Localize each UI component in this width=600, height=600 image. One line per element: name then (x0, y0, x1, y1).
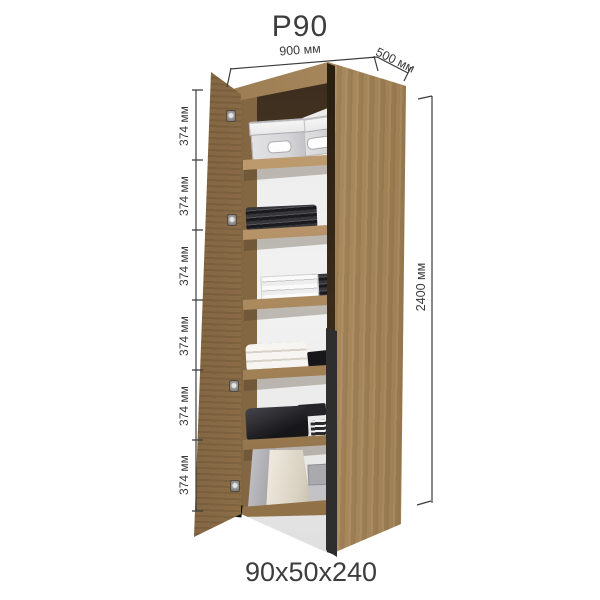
section-dimension-label: 374 мм (177, 96, 191, 156)
height-dimension-label: 2400 мм (414, 252, 428, 322)
width-dimension-line (227, 56, 378, 87)
section-dimension-label: 374 мм (177, 236, 191, 296)
product-title: P90 (0, 10, 600, 44)
section-dimension-label: 374 мм (177, 166, 191, 226)
size-summary: 90x50x240 (0, 557, 600, 588)
product-diagram-page: { "title": "P90", "footer_size": "90x50x… (0, 0, 600, 600)
dimension-lines (0, 0, 600, 600)
section-dimension-line (192, 90, 203, 511)
section-dimension-label: 374 мм (177, 445, 191, 505)
section-dimension-label: 374 мм (177, 376, 191, 436)
section-dimension-label: 374 мм (177, 306, 191, 366)
